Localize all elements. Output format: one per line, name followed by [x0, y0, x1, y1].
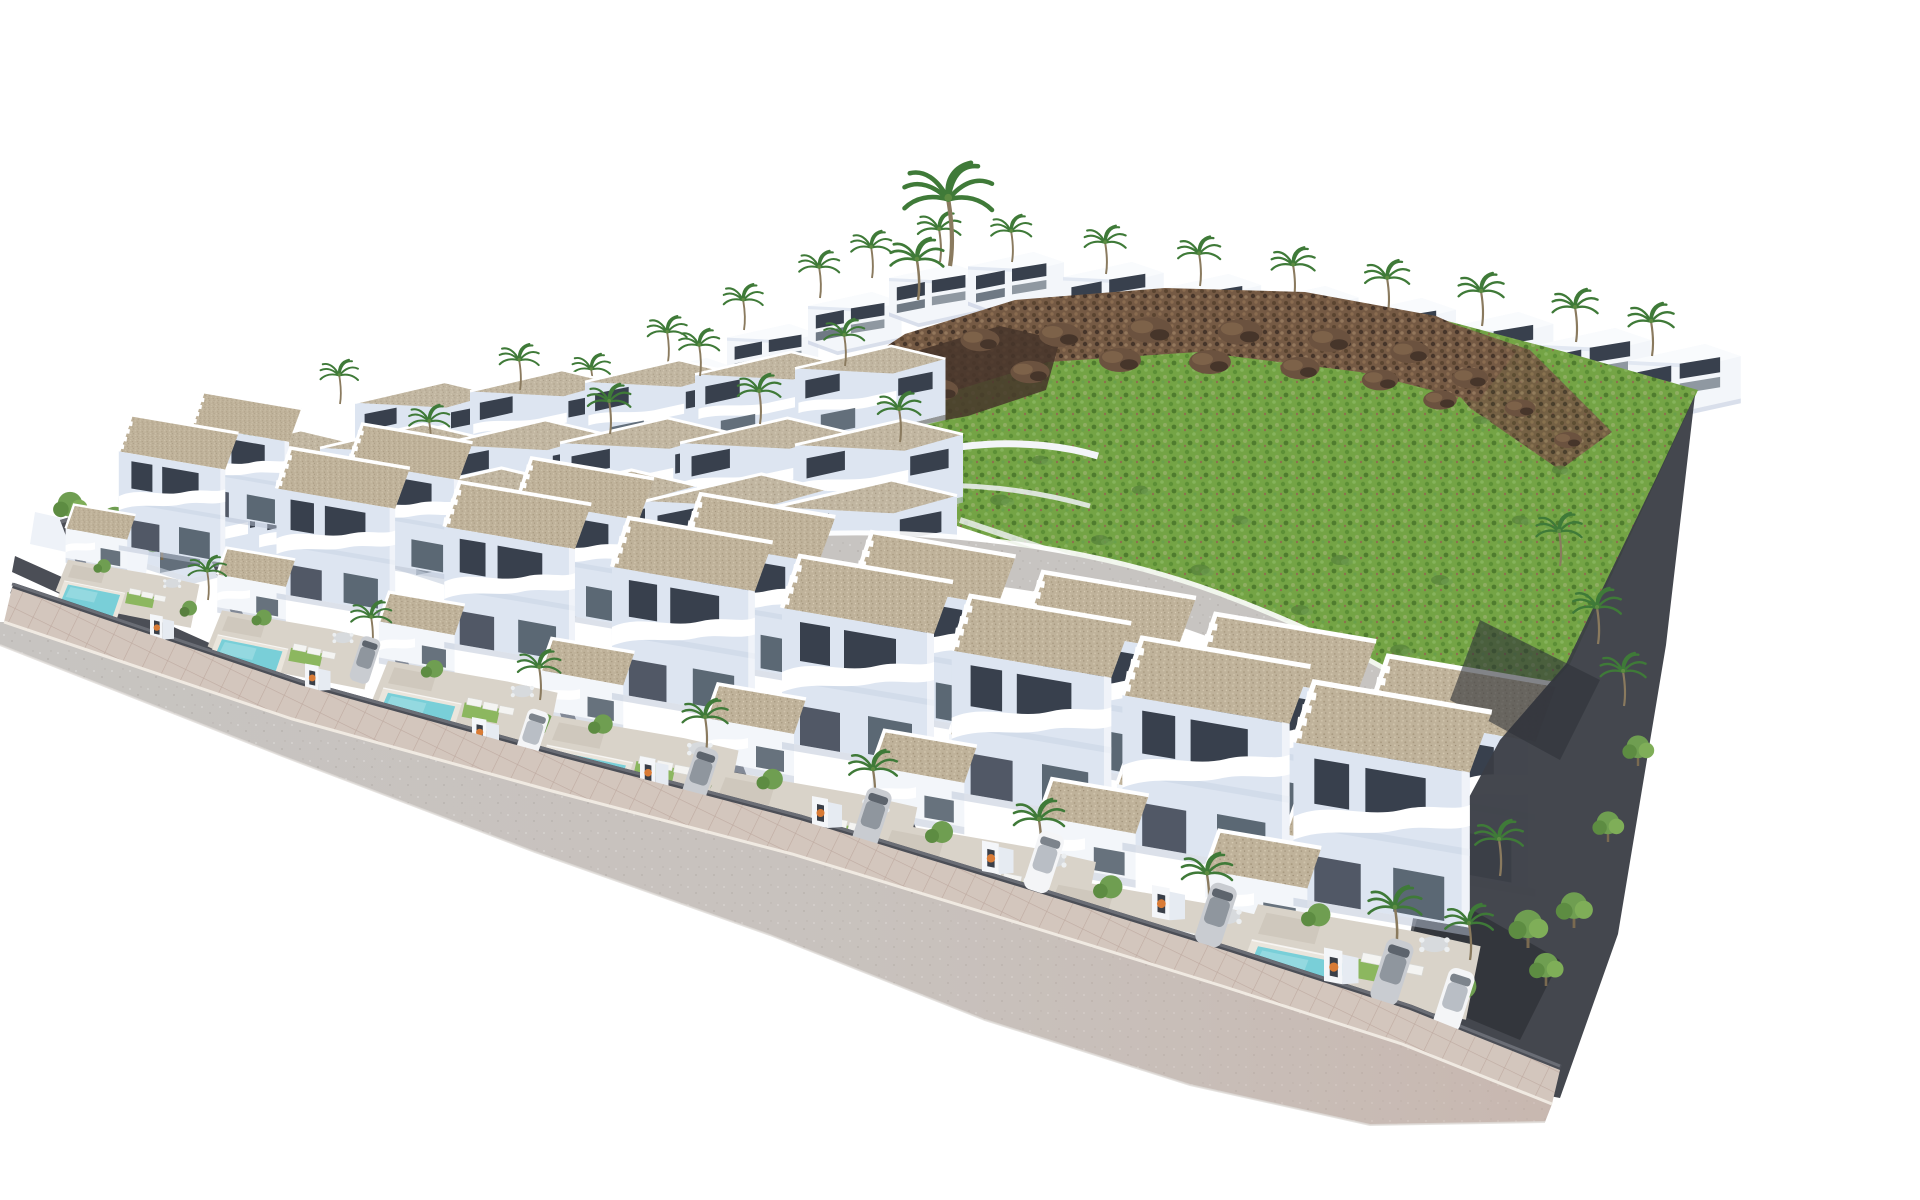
- rock-instance: [1280, 357, 1319, 379]
- rock-instance: [1423, 390, 1457, 409]
- rock-instance: [1554, 432, 1582, 448]
- rock-instance: [1189, 350, 1231, 374]
- rock-instance: [1128, 317, 1173, 343]
- villa-development-aerial-render: [0, 0, 1920, 1200]
- rock-instance: [1039, 323, 1081, 347]
- rock-instance: [960, 329, 999, 351]
- rock-instance: [1099, 348, 1141, 372]
- rock-instance: [1218, 319, 1263, 345]
- rock-instance: [1309, 328, 1351, 352]
- rock-instance: [1362, 370, 1398, 391]
- rock-instance: [1505, 399, 1536, 417]
- rock-instance: [1452, 368, 1488, 389]
- rock-instance: [1010, 361, 1049, 383]
- render-canvas: [0, 0, 1920, 1200]
- rock-instance: [1390, 341, 1429, 363]
